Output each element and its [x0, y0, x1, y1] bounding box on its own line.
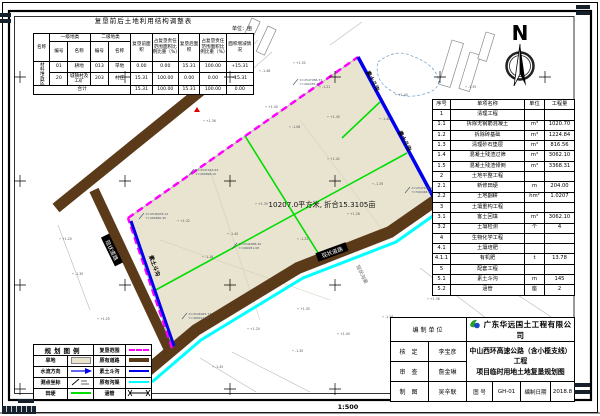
svg-text:+1.36: +1.36: [206, 119, 216, 123]
landuse-row: 材料堆放区 01耕地 013旱地 0.000.00 15.31100.00 +1…: [34, 62, 254, 73]
culvert-icon: [127, 389, 151, 397]
legend-label-flow: 水流方向: [34, 366, 68, 377]
draft-label: 制 图: [391, 382, 429, 402]
company-name: 广东华远国土工程有限公司: [484, 320, 572, 340]
parcel-area-label: 10207.0平方米, 折合15.3105亩: [268, 200, 375, 209]
pre-pct-header: 占复垦责任范围面积比例比重（%）: [152, 34, 178, 62]
legend-label-culvert: 涵管: [94, 388, 126, 399]
svg-text:+1.40: +1.40: [340, 332, 350, 336]
landuse-row: 20城镇村及工矿 203村庄 15.31100.00 0.000.00 -15.…: [34, 73, 254, 86]
landuse-table-title: 复垦前后土地利用结构调整表: [33, 15, 254, 25]
svg-text:Y=500048.62: Y=500048.62: [412, 190, 433, 194]
quantity-row: 3.1客土回填m³3062.10: [433, 213, 575, 223]
svg-text:+1.32: +1.32: [180, 219, 190, 223]
quantity-row: 5.2涵管座2: [433, 285, 575, 295]
dwg-no: GH-01: [493, 382, 521, 402]
svg-text:+1.40: +1.40: [398, 93, 408, 97]
quantity-row: 2.1新修田埂m204.00: [433, 182, 575, 192]
quantity-row: 2土地平整工程: [433, 172, 575, 182]
svg-text:+1.20: +1.20: [250, 327, 260, 331]
work-quantity-table: 序号 单项名称 单位 工程量 1清理工程1.1拆除无钢筋混凝土m³1020.70…: [432, 99, 574, 296]
svg-text:+1.25: +1.25: [100, 317, 110, 321]
landuse-table-unit-note: 单位：亩: [33, 25, 252, 32]
svg-text:-1.30: -1.30: [295, 349, 303, 353]
project-title: 中山西环高速公路（含小榄支线）工程 项目临时用地土地复垦规划图: [467, 342, 575, 382]
svg-text:Y=499860.45: Y=499860.45: [146, 216, 167, 220]
level1-header: 一级地类: [50, 34, 91, 42]
landuse-adjustment-table: 复垦前后土地利用结构调整表 单位：亩 名称 一级地类 二级地类 复垦前面积 占复…: [33, 15, 254, 95]
corner-mark: [574, 383, 590, 387]
channel-swatch: [129, 381, 149, 384]
drawing-sheet: -1.48+1.52-1.21+1.40-0.85+1.36-1.08+1.45…: [0, 0, 600, 416]
legend-label-road: 原有道路: [94, 356, 126, 367]
check-name: 李宝彦: [429, 342, 467, 362]
svg-text:-1.35: -1.35: [375, 182, 383, 186]
legend-label-dryland: 旱地: [34, 356, 68, 367]
svg-text:+1.38: +1.38: [430, 297, 440, 301]
change-header: 面积增减情况: [226, 34, 253, 62]
corner-mark: [0, 19, 11, 23]
quantity-row: 1清理工程: [433, 110, 575, 120]
quantity-row: 1.4混凝土残渣过筛m³3062.10: [433, 151, 575, 161]
svg-text:+1.52: +1.52: [296, 61, 306, 65]
zone-name: 材料堆放区: [34, 62, 50, 86]
svg-text:-1.18: -1.18: [205, 255, 213, 259]
svg-text:-1.30: -1.30: [75, 272, 83, 276]
quantity-row: 4.1土壤培肥: [433, 244, 575, 254]
title-block: 编制单位 广东华远国土工程有限公司 核 定 李宝彦 中山西环高速公路（含小榄支线…: [390, 317, 574, 402]
review-name: 詹金琳: [429, 362, 467, 382]
control-point-marker: [194, 107, 200, 112]
road-swatch: [129, 358, 149, 362]
landuse-total-row: 合计 15.31100.00 15.31100.00 0.00: [34, 86, 254, 95]
svg-text:-1.40: -1.40: [230, 232, 238, 236]
svg-text:-1.35: -1.35: [468, 85, 476, 89]
quantity-row: 5.1素土斗沟m145: [433, 275, 575, 285]
col-name-header: 名称: [34, 34, 50, 62]
reclaim-boundary-swatch: [129, 349, 149, 351]
date-value: 2018.8: [551, 382, 575, 402]
soil-ditch-swatch: [129, 370, 149, 373]
prepared-by-label: 编制单位: [391, 318, 467, 342]
corner-mark: [574, 390, 590, 394]
svg-text:Y=499898.10: Y=499898.10: [196, 172, 217, 176]
quantity-row: 1.2拆除砖基础m³1224.84: [433, 130, 575, 140]
post-pct-header: 占复垦责任范围面积比例比重（%）: [200, 34, 226, 62]
check-label: 核 定: [391, 342, 429, 362]
quantity-row: 1.1拆除无钢筋混凝土m³1020.70: [433, 120, 575, 130]
svg-text:+1.28: +1.28: [350, 212, 360, 216]
svg-text:Y=499912.39: Y=499912.39: [189, 316, 210, 320]
svg-text:+1.20: +1.20: [62, 237, 72, 241]
quantity-row: 1.3清理砂石垫层m³816.56: [433, 141, 575, 151]
pond-outline: [377, 53, 438, 96]
corner-mark: [0, 13, 11, 17]
quantity-row: 4.1.1有机肥t13.78: [433, 254, 575, 264]
date-label: 编制日期: [521, 382, 551, 402]
legend-label-reclaim: 复垦范围: [94, 345, 126, 356]
plan-legend: 规划图例 复垦范围 旱地 原有道路 水流方向 素土斗沟: [33, 344, 151, 400]
quantity-row: 4生物化学工程: [433, 233, 575, 243]
quantity-row: 3土壤重构工程: [433, 202, 575, 212]
quantity-row: 3.2土壤检测个4: [433, 223, 575, 233]
svg-text:-1.21: -1.21: [322, 85, 330, 89]
legend-label-ditch: 素土斗沟: [94, 366, 126, 377]
legend-label-surveypt: 测点坐标: [34, 377, 68, 388]
post-area-header: 复垦后面积: [178, 34, 199, 62]
field-ridge-swatch: [71, 392, 91, 394]
quantity-row: 1.5混凝土残渣倾倒m³3368.31: [433, 161, 575, 171]
dryland-swatch: [71, 357, 91, 364]
svg-text:+1.42: +1.42: [330, 157, 340, 161]
quantity-table-header: 序号 单项名称 单位 工程量: [433, 100, 575, 110]
total-label: 合计: [34, 86, 131, 95]
corner-mark: [576, 5, 590, 9]
channel-label: 现状沟渠: [354, 264, 369, 285]
svg-text:+1.40: +1.40: [268, 105, 278, 109]
level2-header: 二级地类: [90, 34, 131, 42]
legend-label-channel: 原有沟渠: [94, 377, 126, 388]
draft-name: 吴辛联: [429, 382, 467, 402]
company-logo-icon: [469, 318, 480, 329]
pre-area-header: 复垦前面积: [131, 34, 152, 62]
corner-mark: [18, 399, 34, 403]
quantity-row: 5配套工程: [433, 264, 575, 274]
quantity-row: 2.2土地翻耕hm²1.0207: [433, 192, 575, 202]
svg-text:+1.35: +1.35: [300, 307, 310, 311]
north-letter: N: [512, 21, 529, 45]
review-label: 审 查: [391, 362, 429, 382]
company-cell: 广东华远国土工程有限公司: [467, 318, 575, 342]
svg-text:+1.45: +1.45: [330, 115, 340, 119]
illegible-watermark: [2, 406, 36, 414]
quantity-table-body: 1清理工程1.1拆除无钢筋混凝土m³1020.701.2拆除砖基础m³1224.…: [433, 110, 575, 295]
survey-point-icon: [69, 378, 93, 386]
scale-note: 1:500: [318, 403, 378, 411]
flow-arrow-icon: [69, 367, 93, 375]
svg-text:-1.48: -1.48: [262, 69, 270, 73]
svg-text:Y=499951.08: Y=499951.08: [239, 246, 260, 250]
north-arrow: N: [507, 21, 534, 86]
legend-title: 规划图例: [34, 345, 94, 356]
svg-text:-1.22: -1.22: [300, 237, 308, 241]
svg-text:Y=499935.27: Y=499935.27: [300, 82, 321, 86]
dwg-no-label: 图 号: [467, 382, 493, 402]
svg-text:-1.45: -1.45: [215, 365, 223, 369]
legend-label-ridge: 田埂: [34, 388, 68, 399]
svg-text:-1.08: -1.08: [292, 125, 300, 129]
svg-text:-1.48: -1.48: [382, 117, 390, 121]
corner-mark: [576, 11, 590, 15]
svg-text:+1.30: +1.30: [258, 202, 268, 206]
